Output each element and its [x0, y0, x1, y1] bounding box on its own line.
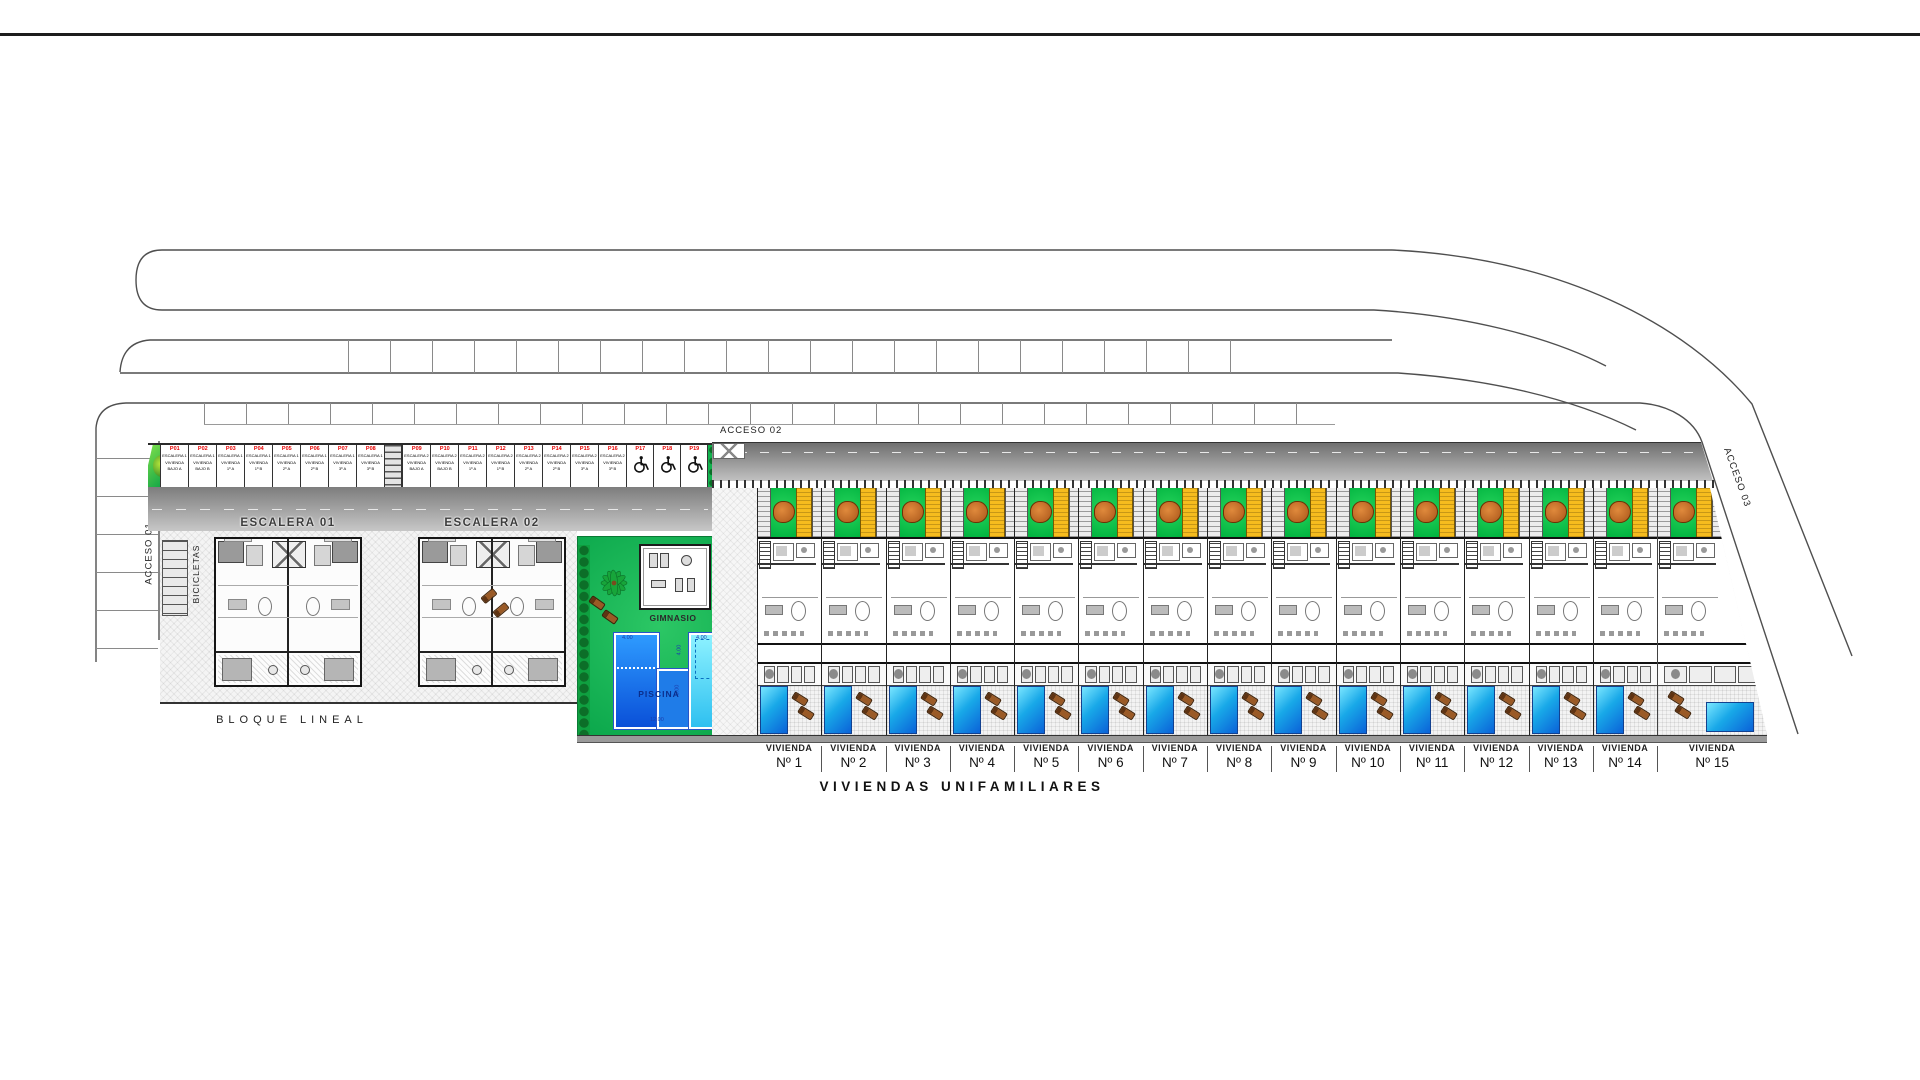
sofa-icon [1151, 605, 1169, 615]
kitchen-counter [1214, 631, 1254, 636]
bedroom [314, 545, 331, 566]
villa-plot [821, 488, 885, 735]
stall-text: ESCALERA 1 [162, 453, 188, 459]
sofa-icon [1279, 605, 1297, 615]
stall-id: P14 [543, 445, 570, 453]
villa-front-yard [1144, 488, 1207, 537]
interior-wall [951, 563, 1009, 565]
bicicletas-label: BICICLETAS [191, 519, 201, 629]
driveway-hatch [1519, 488, 1528, 537]
interior-wall [1276, 597, 1332, 598]
stairs-icon [1080, 541, 1092, 569]
villas-street-dash [716, 452, 1696, 453]
villa-pool [824, 686, 852, 734]
bedroom [1094, 543, 1115, 561]
stairs-icon [1466, 541, 1478, 569]
stairs-icon [1209, 541, 1221, 569]
stall-id: P06 [301, 445, 328, 453]
gym-building [639, 544, 711, 610]
unit-label: Vivienda A [528, 537, 556, 542]
terrace [218, 541, 244, 563]
vivienda-word: VIVIENDA [1078, 743, 1142, 753]
villa-house [1401, 537, 1464, 664]
pergola-strip [1375, 488, 1391, 537]
villa-plot [1593, 488, 1657, 735]
villa-pool [1210, 686, 1238, 734]
bathroom [1632, 543, 1651, 558]
stairs-icon [823, 541, 835, 569]
villa-label: VIVIENDANº 14 [1593, 743, 1657, 770]
villa-front-yard [758, 488, 821, 537]
interior-wall [1530, 563, 1588, 565]
villa-porch [1015, 664, 1078, 686]
round-table-icon [504, 665, 514, 675]
front-lawn [771, 488, 796, 537]
villa-house [1465, 537, 1528, 664]
kitchen-counter [1664, 631, 1704, 636]
kitchen-counter [1536, 631, 1576, 636]
gym-equipment-icon [687, 578, 695, 592]
stall-id: P02 [189, 445, 216, 453]
sun-lounger-icon [791, 691, 809, 706]
sun-lounger-icon [1434, 691, 1452, 706]
parking-stall: P09ESCALERA 2VIVIENDABAJO A [402, 445, 430, 489]
pergola-strip [1182, 488, 1198, 537]
villa-house [1272, 537, 1335, 664]
interior-wall [422, 585, 562, 586]
stall-text: ESCALERA 1 [246, 453, 272, 459]
stall-text: BAJO B [432, 466, 458, 472]
vivienda-word: VIVIENDA [950, 743, 1014, 753]
kitchen-counter [1085, 631, 1125, 636]
gym-equipment-icon [660, 553, 669, 568]
villa-house [1337, 537, 1400, 664]
stall-text: ESCALERA 1 [302, 453, 328, 459]
stair-core-icon [272, 541, 306, 568]
villa-pool [1017, 686, 1045, 734]
stall-text: ESCALERA 2 [516, 453, 542, 459]
villa-label: VIVIENDANº 8 [1207, 743, 1271, 770]
bathroom [1310, 543, 1329, 558]
stairs-icon [1595, 541, 1607, 569]
site-plan-canvas: ACCESO 01 ACCESO 02 ACCESO 03 P01ESCALER… [0, 0, 1920, 1080]
sun-lounger-icon [1504, 705, 1522, 720]
villa-number: Nº 8 [1207, 755, 1271, 770]
interior-wall [826, 597, 882, 598]
villa-number: Nº 7 [1143, 755, 1207, 770]
villa-pool [1274, 686, 1302, 734]
interior-wall [1019, 597, 1075, 598]
apartment-building: Vivienda B Vivienda A [214, 537, 362, 687]
vivienda-word: VIVIENDA [1657, 743, 1767, 753]
tree-icon [1094, 501, 1116, 523]
parking-stall: P19 [680, 445, 707, 489]
stall-id: P18 [654, 445, 680, 453]
villa-labels-row: VIVIENDANº 1VIVIENDANº 2VIVIENDANº 3VIVI… [757, 743, 1767, 770]
tree-icon [1030, 501, 1052, 523]
interior-wall [1401, 563, 1459, 565]
stall-text: 1º B [488, 466, 514, 472]
interior-wall [218, 617, 358, 618]
bedroom [902, 543, 923, 561]
villa-porch [887, 664, 950, 686]
driveway-hatch [1272, 488, 1285, 537]
sofa-icon [228, 599, 247, 610]
villa-label: VIVIENDANº 3 [886, 743, 950, 770]
villa-garden [1144, 686, 1207, 739]
front-lawn [900, 488, 925, 537]
driveway-hatch [1712, 488, 1767, 537]
villa-number: Nº 14 [1593, 755, 1657, 770]
interior-wall [1208, 643, 1271, 645]
stairs-icon [759, 541, 771, 569]
sun-lounger-icon [1498, 691, 1516, 706]
sun-lounger-icon [855, 691, 873, 706]
parking-stall: P10ESCALERA 2VIVIENDABAJO B [430, 445, 458, 489]
interior-wall [1530, 643, 1593, 645]
sofa-icon [331, 599, 350, 610]
interior-wall [1465, 563, 1523, 565]
sofa-icon [1215, 605, 1233, 615]
villa-pool [1403, 686, 1431, 734]
driveway-hatch [941, 488, 950, 537]
table-icon [1112, 601, 1127, 621]
villa-porch [822, 664, 885, 686]
villa-garden [1401, 686, 1464, 739]
interior-wall [1212, 597, 1268, 598]
stairs-icon [1273, 541, 1285, 569]
sun-lounger-icon [1113, 691, 1131, 706]
tree-icon [1416, 501, 1438, 523]
tree-icon [837, 501, 859, 523]
bedroom [1416, 543, 1437, 561]
villa-number: Nº 2 [821, 755, 885, 770]
sofa-icon [1022, 605, 1040, 615]
front-lawn [1092, 488, 1117, 537]
sun-lounger-icon [861, 705, 879, 720]
villa-porch [1594, 664, 1657, 686]
villa-porch [1208, 664, 1271, 686]
sofa-icon [765, 605, 783, 615]
stairs-icon [1016, 541, 1028, 569]
interior-wall [1144, 563, 1202, 565]
tree-icon [1287, 501, 1309, 523]
tree-icon [1159, 501, 1181, 523]
villa-porch [1530, 664, 1593, 686]
stall-text: ESCALERA 2 [600, 453, 626, 459]
unit-label: Vivienda B [428, 537, 456, 542]
villa-pool [1467, 686, 1495, 734]
villa-label: VIVIENDANº 9 [1271, 743, 1335, 770]
kitchen-counter [1021, 631, 1061, 636]
table-icon [1305, 601, 1320, 621]
villa-garden [1594, 686, 1657, 739]
driveway-hatch [1326, 488, 1335, 537]
front-lawn [964, 488, 989, 537]
stall-id: P07 [329, 445, 356, 453]
villa-porch [951, 664, 1014, 686]
bathroom [925, 543, 944, 558]
stall-text: BAJO A [404, 466, 430, 472]
sun-lounger-icon [1569, 705, 1587, 720]
bedroom [1352, 543, 1373, 561]
stall-text: BAJO A [162, 466, 188, 472]
stall-id: P08 [357, 445, 384, 453]
table-icon [1563, 601, 1578, 621]
pergola-strip [1246, 488, 1262, 537]
sun-lounger-icon [1119, 705, 1137, 720]
bedroom [450, 545, 467, 566]
parking-stall: P13ESCALERA 2VIVIENDA2º A [514, 445, 542, 489]
villa-house [1015, 537, 1078, 664]
bathroom [1117, 543, 1136, 558]
driveway-hatch [822, 488, 835, 537]
stall-text: 2º A [516, 466, 542, 472]
villa-number: Nº 6 [1078, 755, 1142, 770]
tree-icon [966, 501, 988, 523]
bathroom [1053, 543, 1072, 558]
kitchen-counter [1150, 631, 1190, 636]
kitchen-counter [1407, 631, 1447, 636]
villa-porch [1079, 664, 1142, 686]
parking-stall: P07ESCALERA 1VIVIENDA3º A [328, 445, 356, 489]
tree-icon [773, 501, 795, 523]
interior-wall [1015, 643, 1078, 645]
table-icon [1691, 601, 1706, 621]
villa-label: VIVIENDANº 11 [1400, 743, 1464, 770]
stall-text: 1º A [460, 466, 486, 472]
interior-wall [822, 563, 880, 565]
viviendas-unifamiliares-title: VIVIENDAS UNIFAMILIARES [600, 779, 1324, 794]
pergola-strip [1568, 488, 1584, 537]
acceso-02-entry-ramp [713, 443, 745, 459]
villa-plot [1207, 488, 1271, 735]
interior-wall [951, 643, 1014, 645]
sun-lounger-icon [990, 705, 1008, 720]
villa-garden [1079, 686, 1142, 739]
bedroom [246, 545, 263, 566]
patio [222, 658, 252, 681]
stall-text: 2º B [302, 466, 328, 472]
round-table-icon [300, 665, 310, 675]
villa-house [1144, 537, 1207, 664]
site-boundary-strip [577, 735, 1767, 743]
sun-lounger-icon [1627, 691, 1645, 706]
table-icon [462, 597, 476, 616]
stall-id: P01 [161, 445, 188, 453]
stall-text: 3º A [330, 466, 356, 472]
front-lawn [1157, 488, 1182, 537]
villa-plot [1336, 488, 1400, 735]
stall-text: ESCALERA 1 [330, 453, 356, 459]
pool-dimension: 4.00 [622, 635, 633, 641]
villa-pool [1081, 686, 1109, 734]
stall-id: P04 [245, 445, 272, 453]
interior-wall [1401, 643, 1464, 645]
kitchen-counter [1278, 631, 1318, 636]
driveway-hatch [812, 488, 821, 537]
patio [324, 658, 354, 681]
interior-wall [1083, 597, 1139, 598]
villa-porch [1465, 664, 1528, 686]
villa-plot [1400, 488, 1464, 735]
villa-porch [758, 664, 821, 686]
villa-front-yard [1272, 488, 1335, 537]
pool-deep-section [614, 633, 659, 729]
villa-front-yard [1401, 488, 1464, 537]
interior-wall [1598, 597, 1654, 598]
driveway-hatch [1401, 488, 1414, 537]
stall-id: P17 [627, 445, 653, 453]
vivienda-word: VIVIENDA [1336, 743, 1400, 753]
front-lawn [1414, 488, 1439, 537]
pool-dimension: 12.00 [650, 717, 664, 723]
communal-pool: 4.00 4.00 4.00 10.00 8.00 12.00 PISCINA [614, 633, 729, 729]
stairs-icon [1338, 541, 1350, 569]
stairs-icon [1531, 541, 1543, 569]
interior-wall [420, 651, 564, 653]
sofa-icon [894, 605, 912, 615]
bedroom [1480, 543, 1501, 561]
interior-wall [1272, 643, 1335, 645]
north-parking-comb [348, 340, 1232, 373]
kitchen-counter [764, 631, 804, 636]
gym-equipment-icon [681, 555, 692, 566]
sofa-icon [535, 599, 554, 610]
stall-id: P11 [459, 445, 486, 453]
driveway-hatch [1455, 488, 1464, 537]
terrace [332, 541, 358, 563]
sun-lounger-icon [1667, 690, 1685, 705]
bedroom [1609, 543, 1630, 561]
bedroom [966, 543, 987, 561]
interior-wall [1144, 643, 1207, 645]
stall-text: 3º A [572, 466, 598, 472]
villa-plot [1078, 488, 1142, 735]
pergola-strip [925, 488, 941, 537]
sofa-icon [1665, 605, 1683, 615]
driveway-hatch [1648, 488, 1657, 537]
bicycle-stalls [162, 540, 188, 616]
sun-lounger-icon [1177, 691, 1195, 706]
sun-lounger-icon [797, 705, 815, 720]
sofa-icon [1472, 605, 1490, 615]
villa-front-yard [1594, 488, 1657, 537]
driveway-hatch [1262, 488, 1271, 537]
villa-number: Nº 3 [886, 755, 950, 770]
bathroom [989, 543, 1008, 558]
stall-text: 1º A [218, 466, 244, 472]
sun-lounger-icon [1048, 691, 1066, 706]
bedroom [1159, 543, 1180, 561]
round-table-icon [472, 665, 482, 675]
pergola-strip [1310, 488, 1326, 537]
bathroom [860, 543, 879, 558]
driveway-hatch [1658, 488, 1671, 537]
villa-plot [886, 488, 950, 735]
parking-stall: P01ESCALERA 1VIVIENDABAJO A [160, 445, 188, 489]
parking-stall: P08ESCALERA 1VIVIENDA3º B [356, 445, 384, 489]
stall-text: ESCALERA 2 [572, 453, 598, 459]
bedroom [1223, 543, 1244, 561]
interior-wall [1079, 563, 1137, 565]
interior-wall [762, 597, 818, 598]
villa-garden [1658, 686, 1767, 739]
villa-front-yard [1337, 488, 1400, 537]
sun-lounger-icon [1247, 705, 1265, 720]
villa-garden [1272, 686, 1335, 739]
unit-label: Vivienda A [324, 537, 352, 542]
wheelchair-icon [632, 455, 649, 474]
front-lawn [1671, 488, 1696, 537]
stall-text: ESCALERA 2 [488, 453, 514, 459]
villa-garden [1337, 686, 1400, 739]
villa-garden [822, 686, 885, 739]
sun-lounger-icon [1305, 691, 1323, 706]
driveway-hatch [1015, 488, 1028, 537]
table-icon [1498, 601, 1513, 621]
sofa-icon [1408, 605, 1426, 615]
driveway-hatch [876, 488, 885, 537]
stall-text: ESCALERA 1 [358, 453, 384, 459]
interior-wall [1337, 563, 1395, 565]
parking-stall: P17 [626, 445, 653, 489]
parking-stall: P12ESCALERA 2VIVIENDA1º B [486, 445, 514, 489]
bathroom [1439, 543, 1458, 558]
stall-id: P15 [571, 445, 598, 453]
villa-label: VIVIENDANº 13 [1529, 743, 1593, 770]
stall-id: P03 [217, 445, 244, 453]
stall-id: P05 [273, 445, 300, 453]
vivienda-word: VIVIENDA [757, 743, 821, 753]
interior-wall [1405, 597, 1461, 598]
stall-text: ESCALERA 2 [544, 453, 570, 459]
interior-wall [1662, 597, 1718, 598]
front-lawn [1028, 488, 1053, 537]
bedroom [1545, 543, 1566, 561]
stairs-icon [888, 541, 900, 569]
patio [426, 658, 456, 681]
stall-text: ESCALERA 2 [404, 453, 430, 459]
lane-center-dash [152, 509, 708, 510]
sun-lounger-icon [1674, 704, 1692, 719]
stall-id: P09 [403, 445, 430, 453]
villa-pool [1146, 686, 1174, 734]
kitchen-counter [1600, 631, 1640, 636]
unit-label: Vivienda B [224, 537, 252, 542]
driveway-hatch [1133, 488, 1142, 537]
vivienda-word: VIVIENDA [1400, 743, 1464, 753]
villa-front-yard [887, 488, 950, 537]
parking-stall: P11ESCALERA 2VIVIENDA1º A [458, 445, 486, 489]
driveway-hatch [1584, 488, 1593, 537]
driveway-hatch [887, 488, 900, 537]
stall-id: P19 [681, 445, 707, 453]
interior-wall [422, 617, 562, 618]
bedroom [518, 545, 535, 566]
villa-label: VIVIENDANº 7 [1143, 743, 1207, 770]
pergola-strip [989, 488, 1005, 537]
vivienda-word: VIVIENDA [886, 743, 950, 753]
parking-row: P01ESCALERA 1VIVIENDABAJO AP02ESCALERA 1… [148, 443, 712, 489]
villa-label: VIVIENDANº 6 [1078, 743, 1142, 770]
terrace [536, 541, 562, 563]
table-icon [258, 597, 272, 616]
villa-garden [1465, 686, 1528, 739]
stairs-icon [952, 541, 964, 569]
villa-front-yard [1465, 488, 1528, 537]
villa-number: Nº 11 [1400, 755, 1464, 770]
